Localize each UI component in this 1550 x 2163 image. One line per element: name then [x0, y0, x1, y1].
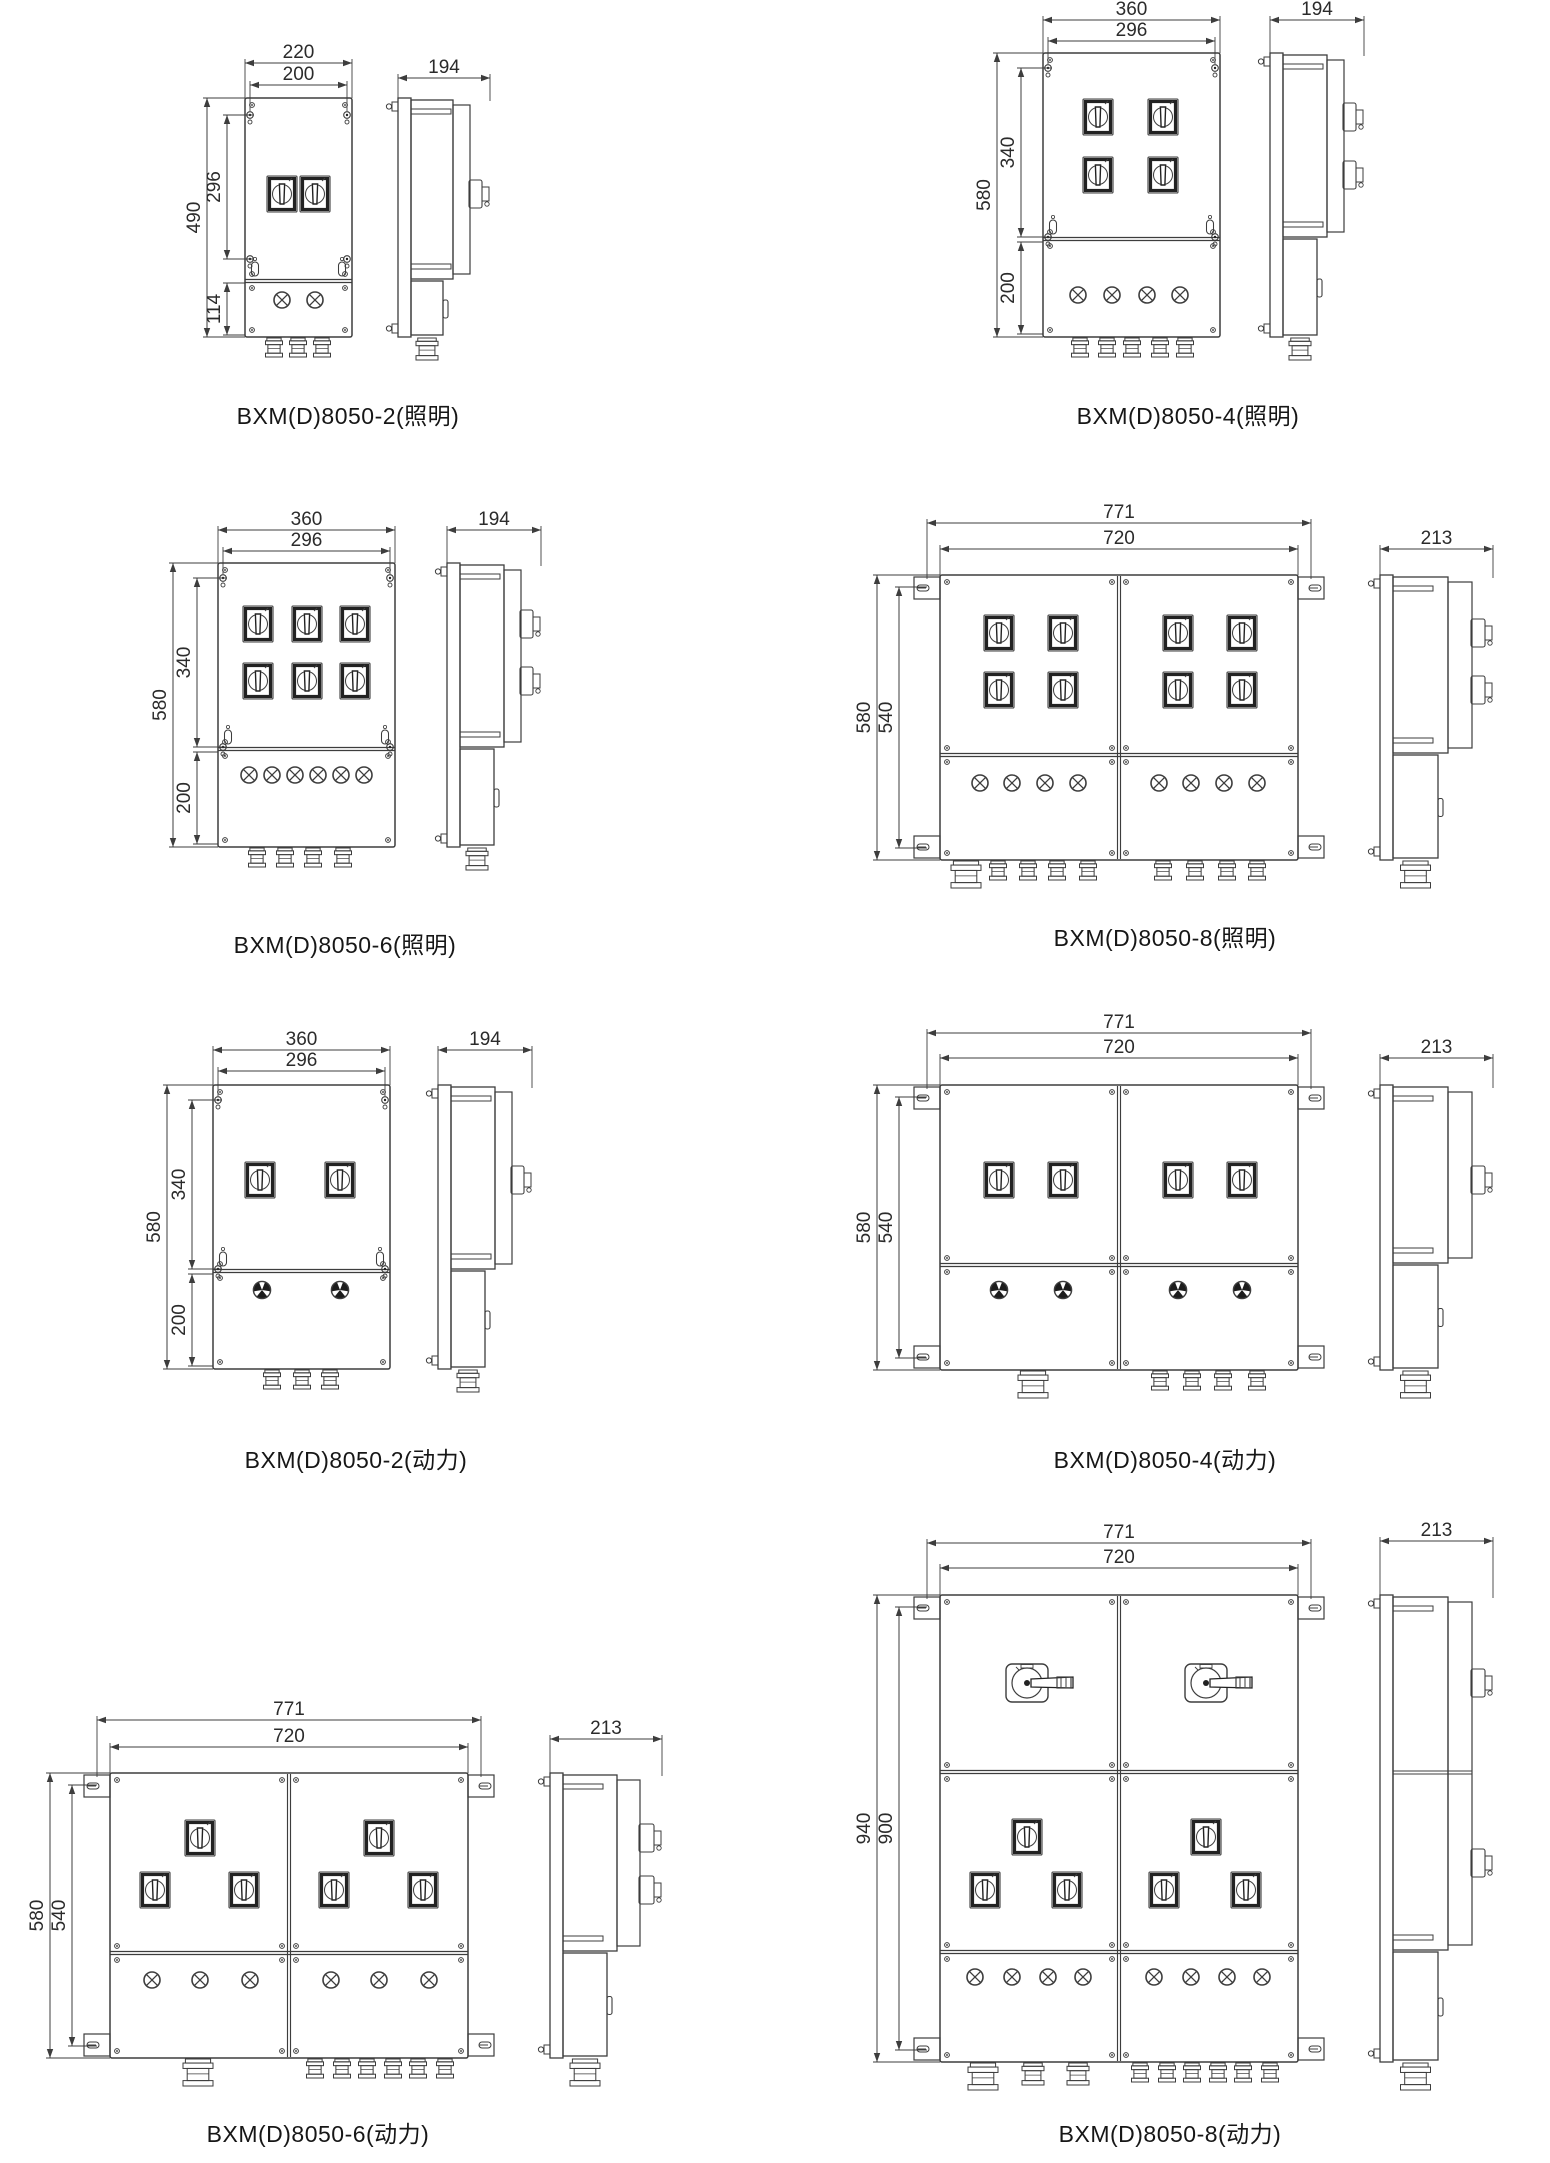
rotary-switch-icon — [292, 663, 322, 699]
dimension: 296 — [223, 530, 390, 574]
indicator-lamp-icon — [323, 1972, 339, 1988]
side-view — [1368, 575, 1492, 888]
dimension-label: 940 — [854, 1813, 875, 1845]
cable-gland-icon — [990, 861, 1007, 880]
front-view — [213, 1085, 390, 1389]
mounting-lug-icon — [220, 575, 227, 587]
cable-gland-icon — [416, 338, 438, 360]
rotary-switch-icon — [1048, 615, 1078, 651]
dimension-label: 771 — [273, 1699, 305, 1720]
dimension-label: 213 — [1421, 1520, 1453, 1541]
cable-gland-icon — [334, 2059, 351, 2078]
indicator-lamp-icon — [1219, 1969, 1235, 1985]
cable-gland-icon — [307, 2059, 324, 2078]
rotary-switch-icon — [229, 1872, 259, 1908]
rotary-switch-icon — [243, 606, 273, 642]
indicator-lamp-icon — [1040, 1969, 1056, 1985]
slot-icon — [220, 1247, 227, 1266]
slot-icon — [1050, 215, 1057, 234]
cable-gland-icon — [1072, 338, 1089, 357]
cable-gland-icon — [1159, 2063, 1176, 2082]
figure-f6: 771720580540213 — [854, 1012, 1493, 1398]
side-view — [1368, 1085, 1492, 1398]
dimension: 296 — [1048, 20, 1215, 64]
power-button-icon — [990, 1281, 1007, 1298]
dimension-label: 540 — [876, 1212, 897, 1244]
dimension-label: 220 — [283, 42, 315, 63]
indicator-lamp-icon — [1037, 775, 1053, 791]
cable-gland-icon — [1020, 861, 1037, 880]
indicator-lamp-icon — [972, 775, 988, 791]
front-view — [84, 1773, 494, 2086]
cable-gland-icon — [1219, 861, 1236, 880]
dimension: 213 — [1380, 1520, 1493, 1598]
cable-gland-icon — [1018, 1371, 1048, 1398]
cable-gland-icon — [1155, 861, 1172, 880]
indicator-lamp-icon — [1104, 287, 1120, 303]
cable-gland-icon — [968, 2063, 998, 2090]
indicator-lamp-icon — [371, 1972, 387, 1988]
dimension-label: 213 — [590, 1718, 622, 1739]
rotary-switch-icon — [408, 1872, 438, 1908]
mounting-tab — [1298, 1346, 1324, 1368]
cable-gland-icon — [266, 338, 283, 357]
cable-gland-icon — [277, 848, 294, 867]
indicator-lamp-icon — [1070, 775, 1086, 791]
dimension-label: 340 — [169, 1169, 190, 1201]
rotary-switch-icon — [970, 1872, 1000, 1908]
mounting-tab — [84, 2034, 110, 2056]
dimension-label: 340 — [174, 647, 195, 679]
front-view — [1043, 53, 1220, 357]
cable-gland-icon — [1210, 2063, 1227, 2082]
cable-gland-icon — [1152, 1371, 1169, 1390]
rotary-switch-icon — [1191, 1819, 1221, 1855]
mounting-tab — [914, 1346, 940, 1368]
rotary-switch-icon — [245, 1162, 275, 1198]
cable-gland-icon — [264, 1370, 281, 1389]
dimension-label: 194 — [1301, 0, 1333, 20]
rotary-switch-icon — [185, 1820, 215, 1856]
dimension: 194 — [438, 1029, 532, 1088]
front-view — [914, 1595, 1324, 2090]
power-button-icon — [1054, 1281, 1071, 1298]
cable-gland-icon — [437, 2059, 454, 2078]
indicator-lamp-icon — [356, 767, 372, 783]
indicator-lamp-icon — [1216, 775, 1232, 791]
cable-gland-icon — [385, 2059, 402, 2078]
side-view — [1368, 1595, 1492, 2090]
cable-gland-icon — [305, 848, 322, 867]
dimension: 194 — [398, 57, 490, 101]
indicator-lamp-icon — [1151, 775, 1167, 791]
cable-gland-icon — [1401, 1371, 1431, 1398]
cable-gland-icon — [1099, 338, 1116, 357]
cable-gland-icon — [1289, 338, 1311, 360]
dimension: 940 — [854, 1595, 940, 2062]
indicator-lamp-icon — [1004, 775, 1020, 791]
indicator-lamp-icon — [1004, 1969, 1020, 1985]
cable-gland-icon — [457, 1370, 479, 1392]
rotary-switch-icon — [1227, 615, 1257, 651]
dimension-label: 771 — [1103, 1012, 1135, 1033]
dimension-label: 360 — [291, 509, 323, 530]
rotary-switch-icon — [292, 606, 322, 642]
dimension-label: 580 — [854, 702, 875, 734]
dimension: 114 — [204, 283, 245, 335]
dimension-label: 580 — [150, 689, 171, 721]
indicator-lamp-icon — [287, 767, 303, 783]
indicator-lamp-icon — [274, 292, 290, 308]
cable-gland-icon — [466, 848, 488, 870]
dimension-label: 580 — [854, 1212, 875, 1244]
rotary-switch-icon — [267, 176, 297, 212]
cable-gland-icon — [249, 848, 266, 867]
cable-gland-icon — [1249, 1371, 1266, 1390]
rotary-switch-icon — [1148, 157, 1178, 193]
dimension: 340 — [998, 68, 1052, 237]
rotary-switch-icon — [1012, 1819, 1042, 1855]
mounting-tab — [1298, 2038, 1324, 2060]
power-button-icon — [253, 1281, 270, 1298]
indicator-lamp-icon — [144, 1972, 160, 1988]
rotary-switch-icon — [364, 1820, 394, 1856]
mounting-lug-icon — [344, 256, 351, 268]
rotary-switch-icon — [325, 1162, 355, 1198]
mounting-lug-icon — [1045, 65, 1052, 77]
dimension-label: 900 — [876, 1813, 897, 1845]
main-switch-icon — [1006, 1664, 1073, 1702]
dimension-label: 200 — [169, 1304, 190, 1336]
cable-gland-icon — [1215, 1371, 1232, 1390]
dimension-label: 540 — [49, 1900, 70, 1932]
mounting-lug-icon — [215, 1097, 222, 1109]
figure-f4: 771720580540213 — [854, 502, 1493, 888]
slot-icon — [1207, 215, 1214, 234]
cable-gland-icon — [1401, 861, 1431, 888]
dimension-label: 194 — [469, 1029, 501, 1050]
dimension: 194 — [447, 509, 541, 566]
figure-caption: BXM(D)8050-6(照明) — [234, 926, 457, 960]
dimension-label: 200 — [998, 272, 1019, 304]
figure-caption: BXM(D)8050-8(照明) — [1054, 919, 1277, 953]
mounting-tab — [914, 1597, 940, 1619]
figure-caption: BXM(D)8050-6(动力) — [207, 2115, 430, 2149]
indicator-lamp-icon — [1254, 1969, 1270, 1985]
side-view — [435, 563, 540, 870]
indicator-lamp-icon — [310, 767, 326, 783]
rotary-switch-icon — [1083, 157, 1113, 193]
indicator-lamp-icon — [241, 767, 257, 783]
cable-gland-icon — [1080, 861, 1097, 880]
dimension: 200 — [250, 64, 347, 111]
slot-icon — [382, 725, 389, 744]
indicator-lamp-icon — [1183, 775, 1199, 791]
mounting-tab — [1298, 836, 1324, 858]
cable-gland-icon — [314, 338, 331, 357]
dimension: 720 — [940, 1547, 1298, 1595]
side-view — [1258, 53, 1363, 360]
dimension-label: 296 — [286, 1050, 318, 1071]
dimension: 213 — [550, 1718, 662, 1776]
dimension-label: 340 — [998, 137, 1019, 169]
cable-gland-icon — [1152, 338, 1169, 357]
mounting-tab — [84, 1775, 110, 1797]
engineering-drawing: 2202004902961141943602965803402001943602… — [0, 0, 1550, 2163]
dimension: 540 — [876, 587, 927, 848]
dimension: 213 — [1380, 528, 1493, 578]
figure-caption: BXM(D)8050-2(照明) — [237, 397, 460, 431]
mounting-tab — [1298, 1087, 1324, 1109]
mounting-lug-icon — [1212, 65, 1219, 77]
rotary-switch-icon — [984, 615, 1014, 651]
indicator-lamp-icon — [1172, 287, 1188, 303]
front-view — [218, 563, 395, 867]
rotary-switch-icon — [1231, 1872, 1261, 1908]
cable-gland-icon — [1262, 2063, 1279, 2082]
dimension-label: 771 — [1103, 502, 1135, 523]
dimension: 194 — [1270, 0, 1364, 56]
dimension-label: 194 — [478, 509, 510, 530]
cable-gland-icon — [359, 2059, 376, 2078]
front-view — [914, 1085, 1324, 1398]
rotary-switch-icon — [1083, 99, 1113, 135]
dimension: 540 — [49, 1785, 97, 2046]
side-view — [386, 98, 489, 360]
rotary-switch-icon — [1148, 99, 1178, 135]
front-view — [914, 575, 1324, 888]
mounting-lug-icon — [247, 112, 254, 124]
rotary-switch-icon — [984, 672, 1014, 708]
rotary-switch-icon — [1048, 1162, 1078, 1198]
mounting-tab — [914, 836, 940, 858]
dimension-label: 213 — [1421, 528, 1453, 549]
mounting-lug-icon — [344, 112, 351, 124]
dimension: 340 — [169, 1100, 222, 1269]
dimension-label: 540 — [876, 702, 897, 734]
rotary-switch-icon — [1227, 672, 1257, 708]
cable-gland-icon — [290, 338, 307, 357]
cable-gland-icon — [1184, 2063, 1201, 2082]
cable-gland-icon — [294, 1370, 311, 1389]
indicator-lamp-icon — [967, 1969, 983, 1985]
indicator-lamp-icon — [1070, 287, 1086, 303]
mounting-tab — [1298, 577, 1324, 599]
dimension: 540 — [876, 1097, 927, 1358]
main-switch-icon — [1185, 1664, 1252, 1702]
side-view — [538, 1773, 661, 2086]
dimension-label: 213 — [1421, 1037, 1453, 1058]
figure-caption: BXM(D)8050-8(动力) — [1059, 2115, 1282, 2149]
mounting-tab — [468, 1775, 494, 1797]
dimension-label: 194 — [428, 57, 460, 78]
rotary-switch-icon — [340, 606, 370, 642]
indicator-lamp-icon — [264, 767, 280, 783]
dimension: 340 — [174, 578, 227, 747]
dimension: 580 — [854, 575, 940, 860]
dimension: 296 — [218, 1050, 385, 1096]
figure-caption: BXM(D)8050-4(动力) — [1054, 1441, 1277, 1475]
front-view — [245, 98, 352, 357]
figure-f5: 360296580340200194 — [144, 1029, 532, 1392]
indicator-lamp-icon — [1146, 1969, 1162, 1985]
dimension: 720 — [940, 1037, 1298, 1085]
rotary-switch-icon — [140, 1872, 170, 1908]
figure-f8: 771720940900213 — [854, 1520, 1493, 2090]
dimension: 720 — [110, 1726, 468, 1773]
mounting-lug-icon — [387, 575, 394, 587]
indicator-lamp-icon — [242, 1972, 258, 1988]
power-button-icon — [1169, 1281, 1186, 1298]
indicator-lamp-icon — [1183, 1969, 1199, 1985]
mounting-tab — [468, 2034, 494, 2056]
rotary-switch-icon — [1163, 615, 1193, 651]
dimension-label: 296 — [204, 171, 225, 203]
figure-f3: 360296580340200194 — [150, 509, 541, 870]
mounting-lug-icon — [382, 1097, 389, 1109]
indicator-lamp-icon — [192, 1972, 208, 1988]
cable-gland-icon — [322, 1370, 339, 1389]
cable-gland-icon — [1022, 2063, 1044, 2085]
figure-f2: 360296580340200194 — [974, 0, 1364, 360]
dimension-label: 580 — [144, 1211, 165, 1243]
rotary-switch-icon — [1048, 672, 1078, 708]
rotary-switch-icon — [243, 663, 273, 699]
indicator-lamp-icon — [421, 1972, 437, 1988]
cable-gland-icon — [951, 861, 981, 888]
rotary-switch-icon — [319, 1872, 349, 1908]
dimension-label: 200 — [174, 782, 195, 814]
cable-gland-icon — [1132, 2063, 1149, 2082]
indicator-lamp-icon — [1139, 287, 1155, 303]
dimension-label: 580 — [974, 179, 995, 211]
dimension: 200 — [169, 1274, 213, 1366]
cable-gland-icon — [1249, 861, 1266, 880]
dimension: 900 — [876, 1607, 927, 2050]
cable-gland-icon — [1124, 338, 1141, 357]
cable-gland-icon — [335, 848, 352, 867]
slot-icon — [377, 1247, 384, 1266]
cable-gland-icon — [183, 2059, 213, 2086]
dimension: 200 — [998, 242, 1043, 334]
power-button-icon — [1233, 1281, 1250, 1298]
cable-gland-icon — [1049, 861, 1066, 880]
dimension: 296 — [204, 115, 254, 259]
dimension: 720 — [940, 528, 1298, 575]
mounting-lug-icon — [247, 256, 254, 268]
dimension: 213 — [1380, 1037, 1493, 1088]
dimension-label: 720 — [1103, 528, 1135, 549]
side-view — [426, 1085, 531, 1392]
dimension-label: 490 — [184, 202, 205, 234]
cable-gland-icon — [410, 2059, 427, 2078]
dimension-label: 296 — [291, 530, 323, 551]
indicator-lamp-icon — [1249, 775, 1265, 791]
mounting-tab — [914, 1087, 940, 1109]
indicator-lamp-icon — [1075, 1969, 1091, 1985]
cable-gland-icon — [570, 2059, 600, 2086]
cable-gland-icon — [1401, 2063, 1431, 2090]
dimension-label: 296 — [1116, 20, 1148, 41]
mounting-tab — [914, 2038, 940, 2060]
figure-caption: BXM(D)8050-2(动力) — [245, 1441, 468, 1475]
figure-f7: 771720580540213 — [27, 1699, 662, 2086]
rotary-switch-icon — [984, 1162, 1014, 1198]
rotary-switch-icon — [1227, 1162, 1257, 1198]
dimension-label: 360 — [1116, 0, 1148, 20]
cable-gland-icon — [1235, 2063, 1252, 2082]
mounting-tab — [914, 577, 940, 599]
cable-gland-icon — [1184, 1371, 1201, 1390]
indicator-lamp-icon — [307, 292, 323, 308]
dimension-label: 720 — [1103, 1037, 1135, 1058]
rotary-switch-icon — [1163, 1162, 1193, 1198]
indicator-lamp-icon — [333, 767, 349, 783]
rotary-switch-icon — [1149, 1872, 1179, 1908]
cable-gland-icon — [1177, 338, 1194, 357]
dimension-label: 114 — [204, 293, 225, 324]
cable-gland-icon — [1187, 861, 1204, 880]
rotary-switch-icon — [300, 176, 330, 212]
dimension-label: 200 — [283, 64, 315, 85]
cable-gland-icon — [1067, 2063, 1089, 2085]
mounting-tab — [1298, 1597, 1324, 1619]
dimension-label: 720 — [273, 1726, 305, 1747]
figure-f1: 220200490296114194 — [184, 42, 490, 360]
dimension-label: 720 — [1103, 1547, 1135, 1568]
figure-caption: BXM(D)8050-4(照明) — [1077, 397, 1300, 431]
rotary-switch-icon — [340, 663, 370, 699]
rotary-switch-icon — [1163, 672, 1193, 708]
dimension-label: 580 — [27, 1900, 48, 1932]
dimension-label: 360 — [286, 1029, 318, 1050]
power-button-icon — [331, 1281, 348, 1298]
dimension: 580 — [854, 1085, 940, 1370]
slot-icon — [225, 725, 232, 744]
dimension-label: 771 — [1103, 1522, 1135, 1543]
dimension: 200 — [174, 752, 218, 844]
rotary-switch-icon — [1052, 1872, 1082, 1908]
